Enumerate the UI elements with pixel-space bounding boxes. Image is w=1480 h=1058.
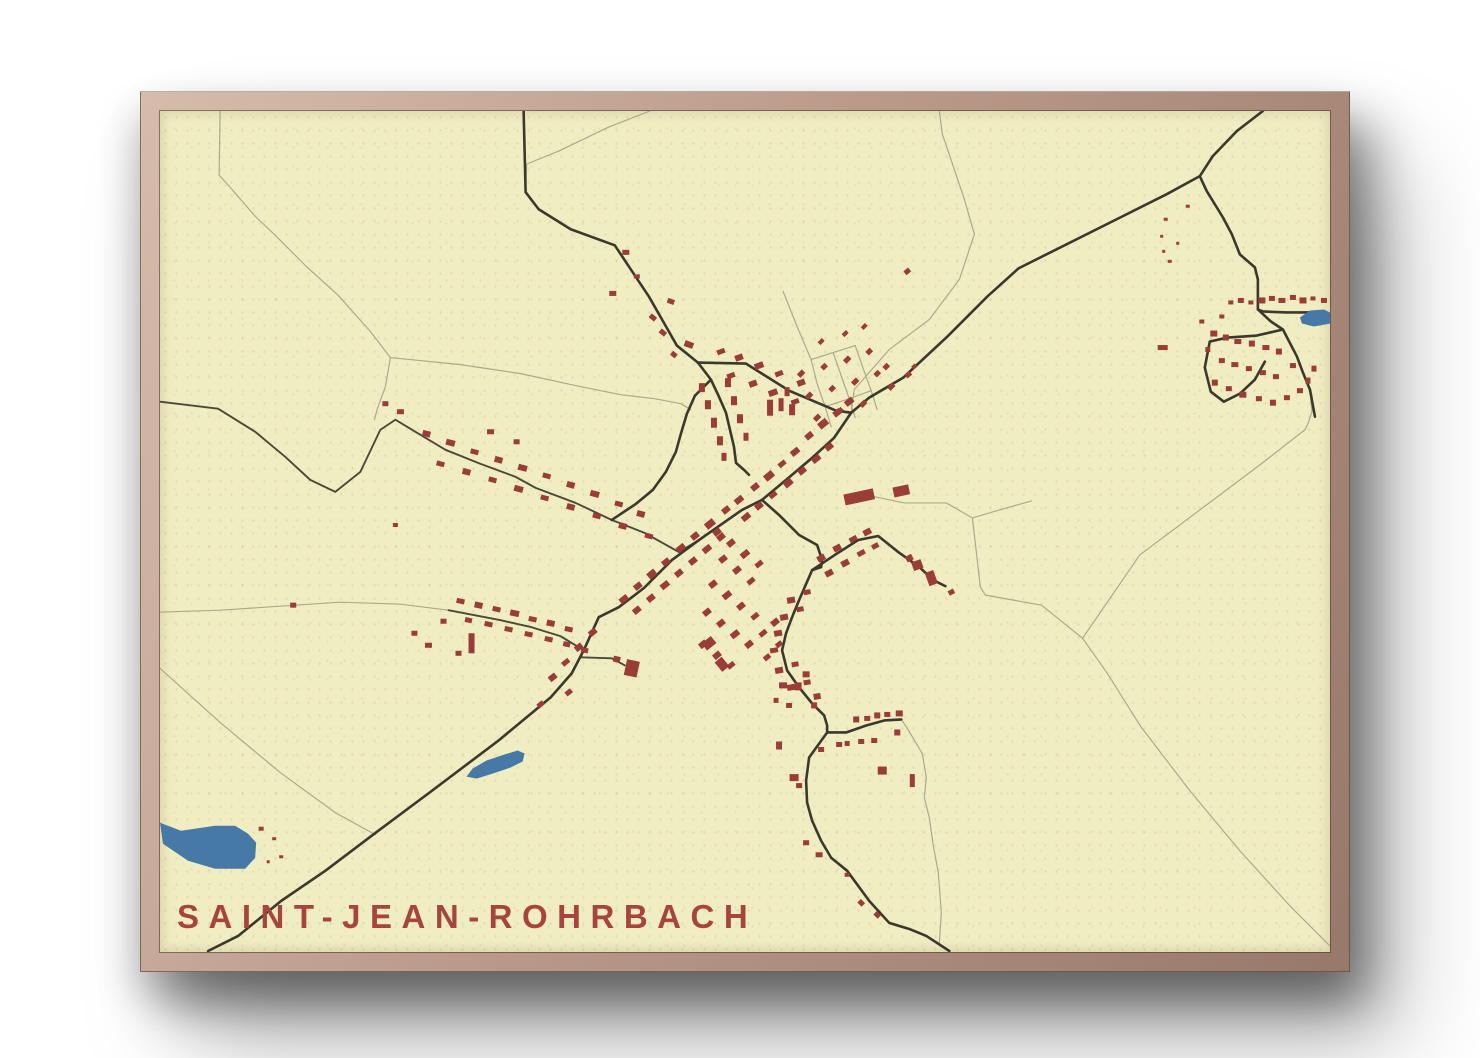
buildings-building <box>708 579 718 589</box>
buildings-building <box>858 739 864 744</box>
buildings-building <box>1164 218 1168 221</box>
buildings-building <box>564 626 573 633</box>
buildings-building <box>267 860 270 863</box>
buildings-building <box>705 400 711 409</box>
major-road <box>208 111 1263 951</box>
buildings-building <box>748 379 758 387</box>
buildings-building <box>721 453 726 461</box>
buildings-building <box>777 459 786 468</box>
buildings-building <box>670 351 678 359</box>
buildings-building <box>528 616 537 623</box>
buildings-building <box>818 747 824 752</box>
buildings-building <box>436 460 445 467</box>
buildings-building <box>776 741 782 749</box>
buildings-building <box>667 298 675 305</box>
buildings-building <box>624 659 640 677</box>
buildings-building <box>622 250 629 255</box>
major-road <box>1258 309 1315 416</box>
buildings-building <box>884 712 890 717</box>
buildings-building <box>659 580 670 590</box>
minor-road <box>390 358 691 410</box>
buildings-building <box>456 651 462 656</box>
buildings-building <box>618 594 629 604</box>
buildings-building <box>494 456 503 464</box>
buildings-building <box>646 569 657 580</box>
buildings-building <box>1186 205 1190 208</box>
buildings-building <box>737 414 743 423</box>
buildings-building <box>813 693 821 700</box>
buildings-building <box>1212 380 1218 386</box>
buildings-building <box>659 328 668 336</box>
buildings-building <box>397 409 404 414</box>
buildings-building <box>425 643 432 648</box>
buildings-building <box>544 636 553 643</box>
major-road <box>524 111 698 363</box>
buildings-building <box>279 855 283 858</box>
buildings-building <box>1226 386 1232 391</box>
buildings-building <box>1234 339 1241 344</box>
buildings-building <box>746 577 755 586</box>
buildings-building <box>774 370 783 377</box>
buildings-building <box>779 682 787 688</box>
buildings-building <box>524 631 533 638</box>
buildings-building <box>1219 358 1225 363</box>
buildings-building <box>470 448 479 455</box>
buildings-building <box>790 447 801 457</box>
buildings-building <box>797 369 805 378</box>
buildings-building <box>750 482 760 492</box>
buildings-building <box>564 688 573 696</box>
buildings-building <box>763 653 772 661</box>
buildings-building <box>272 837 276 840</box>
buildings-building <box>382 401 388 406</box>
buildings-building <box>510 609 520 617</box>
minor-road <box>972 518 1082 638</box>
buildings-building <box>795 682 802 690</box>
buildings-building <box>740 549 751 559</box>
buildings-building <box>763 470 775 482</box>
buildings-building <box>873 370 881 378</box>
major-road <box>612 380 711 520</box>
buildings-building <box>725 378 731 387</box>
buildings-building <box>796 378 806 386</box>
buildings-building <box>1270 400 1276 406</box>
buildings-building <box>1290 363 1296 368</box>
buildings-building <box>484 621 493 628</box>
buildings-building <box>566 481 575 489</box>
buildings-building <box>699 383 705 392</box>
buildings-building <box>842 330 849 337</box>
buildings-building <box>1210 331 1217 337</box>
buildings-building <box>750 612 759 621</box>
buildings-building <box>862 527 872 536</box>
buildings-building <box>736 601 746 611</box>
buildings-building <box>845 873 850 877</box>
poster-frame: SAINT-JEAN-ROHRBACH <box>140 91 1350 972</box>
buildings-building <box>1219 314 1224 318</box>
major-road <box>1205 330 1283 402</box>
buildings-building <box>770 647 779 653</box>
buildings-building <box>903 268 911 276</box>
buildings-building <box>561 658 570 667</box>
buildings-building <box>1168 260 1172 263</box>
buildings-building <box>540 494 549 501</box>
buildings-building <box>1246 366 1252 371</box>
buildings-building <box>445 439 455 447</box>
scene: SAINT-JEAN-ROHRBACH <box>0 0 1480 1058</box>
buildings-building <box>811 702 817 708</box>
buildings-building <box>1284 395 1290 400</box>
buildings-building <box>722 590 733 600</box>
buildings-building <box>632 605 642 615</box>
major-road <box>827 719 901 732</box>
buildings-building <box>474 601 483 609</box>
buildings-building <box>731 396 737 405</box>
buildings-building <box>440 619 446 624</box>
buildings-building <box>840 559 850 568</box>
buildings-building <box>517 464 527 472</box>
buildings-building <box>1258 297 1265 303</box>
buildings-building <box>1176 242 1179 245</box>
buildings-building <box>644 533 653 540</box>
buildings-building <box>1273 374 1279 379</box>
buildings-building <box>828 385 836 393</box>
buildings-building <box>1162 250 1165 253</box>
buildings-building <box>1290 295 1296 300</box>
buildings-building <box>882 363 890 371</box>
buildings-building <box>702 607 712 617</box>
buildings-building <box>732 565 742 575</box>
buildings-building <box>684 340 695 349</box>
buildings-building <box>716 618 726 628</box>
buildings-building <box>1305 378 1310 384</box>
buildings-building <box>780 614 789 621</box>
buildings-building <box>1231 362 1238 367</box>
buildings-building <box>894 729 900 735</box>
water <box>467 751 525 779</box>
buildings-building <box>824 569 834 578</box>
buildings-building <box>726 538 736 548</box>
buildings-building <box>1249 341 1255 347</box>
buildings-building <box>1238 298 1244 303</box>
buildings-building <box>1299 297 1306 303</box>
map-title: SAINT-JEAN-ROHRBACH <box>177 898 757 936</box>
buildings-building <box>721 505 731 515</box>
buildings-building <box>925 570 938 586</box>
buildings-building <box>1205 347 1210 352</box>
buildings-building <box>836 742 842 747</box>
buildings-building <box>1311 366 1316 372</box>
buildings-building <box>661 557 671 567</box>
buildings-building <box>845 741 850 746</box>
buildings-building <box>1199 319 1204 323</box>
buildings-building <box>865 348 873 356</box>
buildings-building <box>803 840 809 845</box>
buildings-building <box>1158 345 1168 350</box>
buildings-building <box>734 353 744 361</box>
buildings-building <box>758 629 767 638</box>
buildings-building <box>1269 296 1275 301</box>
buildings-building <box>566 503 575 511</box>
buildings-building <box>646 593 656 603</box>
buildings-building <box>487 429 494 434</box>
major-road <box>812 536 945 586</box>
buildings-building <box>843 488 875 505</box>
minor-road <box>783 291 811 359</box>
buildings-building <box>874 712 880 718</box>
buildings-building <box>789 404 795 415</box>
buildings-building <box>856 549 865 557</box>
buildings-building <box>618 522 627 530</box>
minor-road <box>526 111 650 192</box>
buildings-building <box>634 274 640 278</box>
buildings-building <box>785 387 790 396</box>
buildings-building <box>688 556 698 566</box>
minor-road <box>811 360 831 427</box>
buildings-building <box>871 738 877 743</box>
buildings-building <box>1160 235 1163 238</box>
buildings-building <box>1310 296 1315 300</box>
minor-road <box>160 668 375 834</box>
buildings-building <box>796 783 802 788</box>
buildings-building <box>803 679 811 685</box>
buildings-building <box>1278 298 1285 303</box>
buildings-building <box>754 361 765 370</box>
minor-road <box>901 719 941 943</box>
major-road <box>1200 176 1330 314</box>
map-svg <box>160 111 1330 952</box>
buildings-building <box>717 436 723 445</box>
buildings-building <box>290 603 296 608</box>
medium-road <box>160 402 699 552</box>
buildings-building <box>1321 298 1327 303</box>
buildings-building <box>787 597 796 604</box>
buildings-building <box>754 560 763 569</box>
buildings-building <box>770 617 780 627</box>
buildings-building <box>803 671 810 677</box>
buildings-building <box>790 774 799 781</box>
buildings-building <box>817 418 829 430</box>
buildings-building <box>779 398 784 411</box>
buildings-building <box>492 606 501 613</box>
buildings-building <box>864 716 870 721</box>
buildings-building <box>456 598 465 605</box>
buildings-building <box>843 355 851 364</box>
buildings-building <box>609 291 616 296</box>
buildings-building <box>701 636 716 651</box>
buildings-building <box>393 523 398 527</box>
buildings-building <box>730 629 741 639</box>
buildings-building <box>774 630 783 637</box>
buildings-building <box>734 495 745 505</box>
buildings-building <box>878 767 887 775</box>
buildings-building <box>774 698 779 703</box>
buildings-building <box>804 431 814 441</box>
buildings-building <box>1256 396 1262 401</box>
buildings-building <box>711 418 717 428</box>
buildings-building <box>744 639 754 649</box>
buildings-building <box>1248 300 1253 304</box>
minor-road <box>861 494 1031 518</box>
buildings-building <box>896 710 903 716</box>
buildings-building <box>462 468 471 476</box>
buildings-building <box>824 442 834 452</box>
buildings-building <box>1239 392 1246 398</box>
buildings-building <box>741 512 752 522</box>
buildings-building <box>892 484 910 497</box>
buildings-building <box>504 626 513 633</box>
buildings-building <box>718 554 728 564</box>
buildings-building <box>1223 335 1229 341</box>
buildings-building <box>853 716 859 722</box>
buildings-building <box>1228 300 1233 304</box>
buildings-building <box>636 510 645 518</box>
buildings-building <box>768 388 779 397</box>
buildings-building <box>716 348 725 355</box>
buildings-building <box>797 466 807 476</box>
buildings-building <box>948 589 956 596</box>
buildings-building <box>871 542 880 550</box>
buildings-building <box>513 485 523 493</box>
map-paper: SAINT-JEAN-ROHRBACH <box>160 111 1330 952</box>
buildings-building <box>1262 345 1269 350</box>
buildings-building <box>791 661 799 667</box>
buildings-building <box>259 827 264 831</box>
buildings-building <box>782 477 793 488</box>
buildings-building <box>614 500 623 507</box>
buildings-building <box>514 439 520 444</box>
buildings-building <box>787 684 796 691</box>
buildings-building <box>548 672 558 682</box>
buildings-building <box>702 544 713 554</box>
buildings-building <box>1276 349 1282 355</box>
buildings-building <box>910 774 915 787</box>
buildings-building <box>820 363 828 371</box>
buildings-building <box>613 656 621 663</box>
buildings-building <box>743 433 748 441</box>
buildings-building <box>1260 370 1266 375</box>
buildings-building <box>1297 388 1303 393</box>
buildings-building <box>411 631 417 636</box>
minor-road <box>833 353 855 418</box>
buildings-building <box>818 338 825 345</box>
buildings-building <box>861 323 868 330</box>
buildings-building <box>767 400 773 416</box>
buildings-building <box>542 472 551 479</box>
buildings-building <box>649 313 658 321</box>
buildings-building <box>816 852 823 857</box>
water <box>160 823 256 869</box>
buildings-building <box>813 413 821 422</box>
buildings-building <box>775 667 784 674</box>
buildings-building <box>488 476 497 483</box>
buildings-building <box>590 490 600 498</box>
buildings-building <box>811 454 822 464</box>
minor-road <box>1083 430 1330 946</box>
buildings-building <box>469 633 475 653</box>
buildings-building <box>546 619 555 627</box>
buildings-building <box>465 617 473 623</box>
buildings-building <box>786 703 792 708</box>
minor-road <box>219 111 390 420</box>
buildings-building <box>674 568 684 578</box>
buildings-building <box>857 899 865 907</box>
minor-road <box>160 602 448 612</box>
